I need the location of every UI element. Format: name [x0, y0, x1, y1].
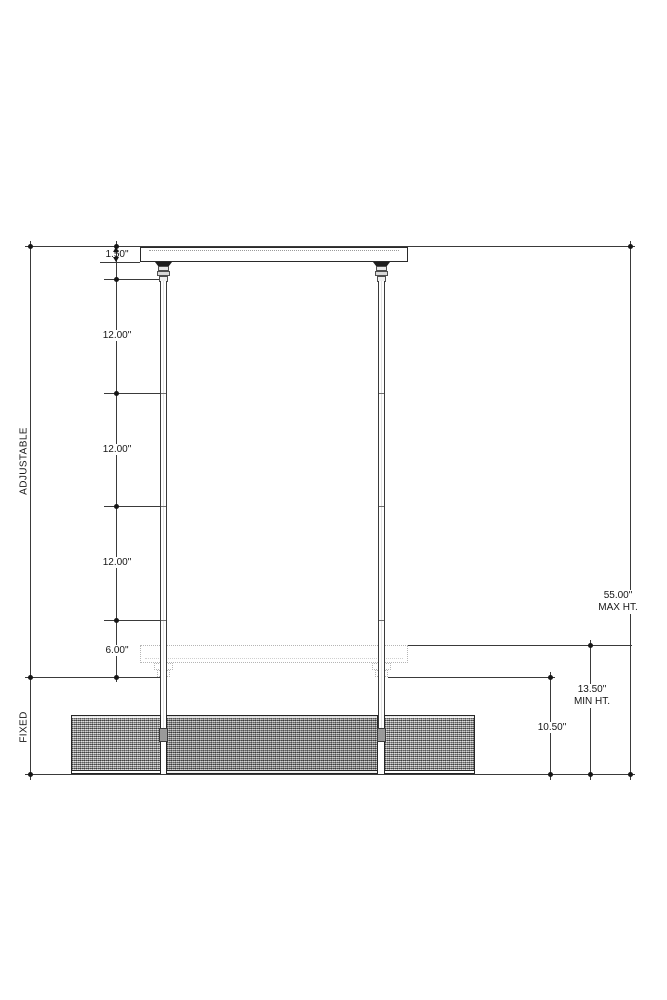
right-shade-clamp [377, 728, 386, 742]
ceiling-canopy [140, 247, 408, 262]
fixed-top-extension-line-right [388, 677, 555, 678]
tick-dot [628, 772, 633, 777]
adjustable-range-label: ADJUSTABLE [19, 425, 30, 497]
stem-joint2-extension-line [104, 506, 160, 507]
tick-dot [114, 504, 119, 509]
tick-dot [548, 675, 553, 680]
stem-joint [161, 506, 166, 507]
canopy-bottom-extension-line [100, 262, 140, 263]
dim-fixed-height: 10.50" [536, 722, 569, 733]
raised-position-outline [140, 645, 408, 663]
stem-top-extension-line [104, 279, 160, 280]
tick-dot [114, 277, 119, 282]
tick-dot [588, 772, 593, 777]
dim-min-height: 13.50" MIN HT. [572, 684, 612, 708]
canopy-mounting-detail [149, 250, 399, 251]
tick-dot [114, 675, 119, 680]
tick-dot [628, 244, 633, 249]
tick-dot [548, 772, 553, 777]
max-height-label: MAX HT. [598, 602, 637, 614]
dim-stem-segment-3: 12.00" [101, 557, 134, 568]
dim-stem-segment-1: 12.00" [101, 330, 134, 341]
stem-joint [379, 620, 384, 621]
shade-bottom-rim [71, 770, 161, 774]
right-stem-rod [378, 281, 385, 742]
left-shade-clamp [159, 728, 168, 742]
tick-dot [28, 772, 33, 777]
stem-joint [379, 393, 384, 394]
min-height-extension-line [408, 645, 632, 646]
stem-joint1-extension-line [104, 393, 160, 394]
tick-dot [28, 244, 33, 249]
min-height-dim-line [590, 640, 591, 780]
dim-stem-segment-2: 12.00" [101, 444, 134, 455]
max-height-value: 55.00" [598, 590, 637, 602]
shade-bottom-rim [166, 770, 378, 774]
dim-stem-segment-4: 6.00" [103, 645, 130, 656]
stem-joint3-extension-line [104, 620, 160, 621]
stem-joint [161, 393, 166, 394]
min-height-value: 13.50" [574, 684, 610, 696]
dim-max-height: 55.00" MAX HT. [596, 590, 639, 614]
fixed-top-extension-line-left [25, 677, 160, 678]
tick-dot [114, 391, 119, 396]
raised-position-inner-line [145, 658, 403, 659]
left-stem-rod [160, 281, 167, 742]
shade-panel-center [166, 715, 378, 774]
dim-canopy-height: 1.50" [103, 249, 130, 260]
tick-dot [114, 618, 119, 623]
stem-joint [161, 620, 166, 621]
baseline [25, 774, 635, 775]
overall-left-dim-line [30, 241, 31, 780]
shade-bottom-rim [384, 770, 475, 774]
max-height-dim-line [630, 241, 631, 780]
drawing-canvas: 1.50" 12.00" 12.00" 12.00" 6.00" 55.00" … [0, 0, 667, 1000]
stem-joint [379, 506, 384, 507]
tick-dot [588, 643, 593, 648]
segment-chain-dim-line [116, 241, 117, 682]
tick-dot [28, 675, 33, 680]
shade-panel-left [71, 715, 161, 774]
shade-panel-right [384, 715, 475, 774]
fixed-range-label: FIXED [19, 709, 30, 744]
min-height-label: MIN HT. [574, 696, 610, 708]
